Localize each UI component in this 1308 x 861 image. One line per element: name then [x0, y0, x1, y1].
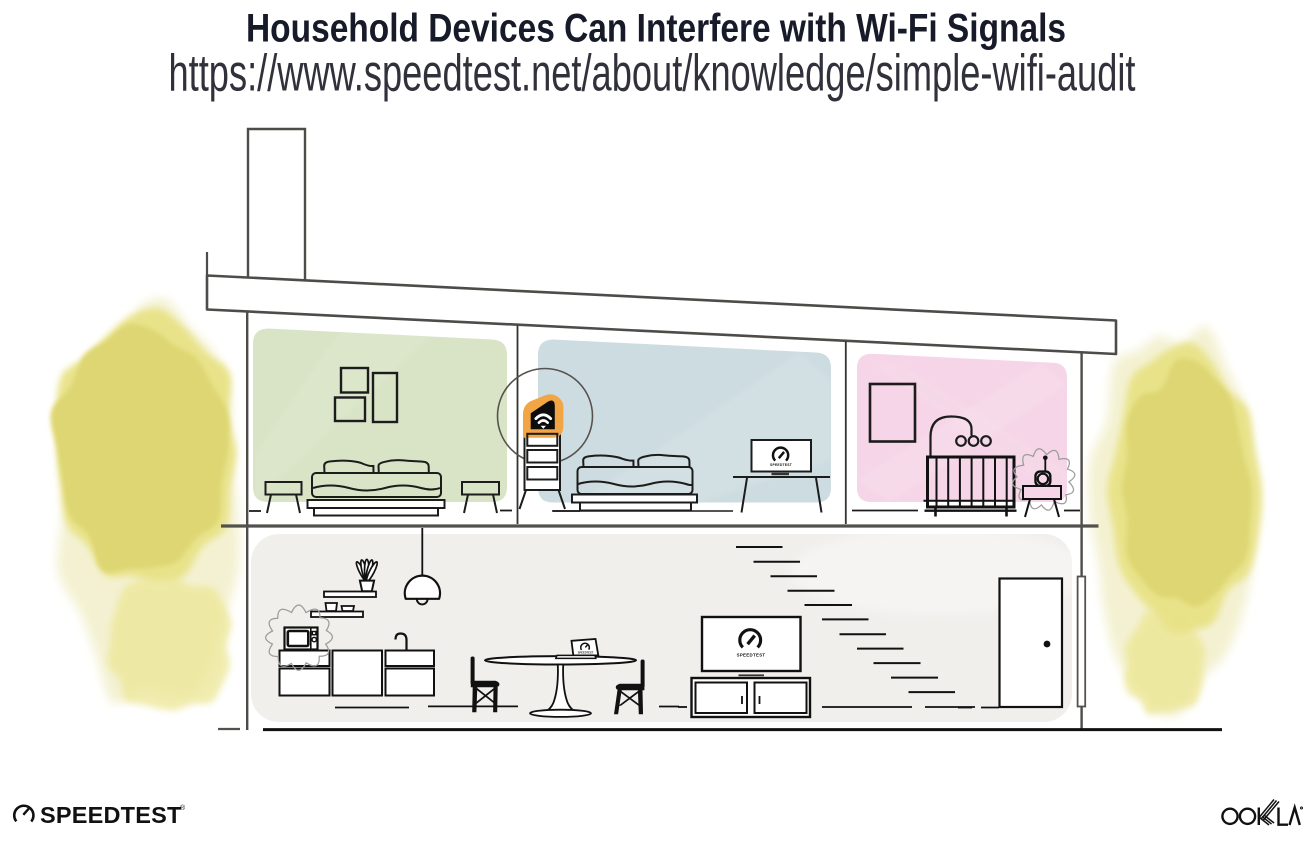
svg-text:https://www.speedtest.net/abou: https://www.speedtest.net/about/knowledg… [169, 45, 1136, 103]
svg-text:SPEEDTEST: SPEEDTEST [578, 651, 594, 655]
svg-text:SPEEDTEST: SPEEDTEST [40, 802, 182, 828]
svg-text:SPEEDTEST: SPEEDTEST [770, 463, 793, 467]
svg-text:SPEEDTEST: SPEEDTEST [737, 653, 766, 658]
svg-text:®: ® [180, 804, 186, 812]
